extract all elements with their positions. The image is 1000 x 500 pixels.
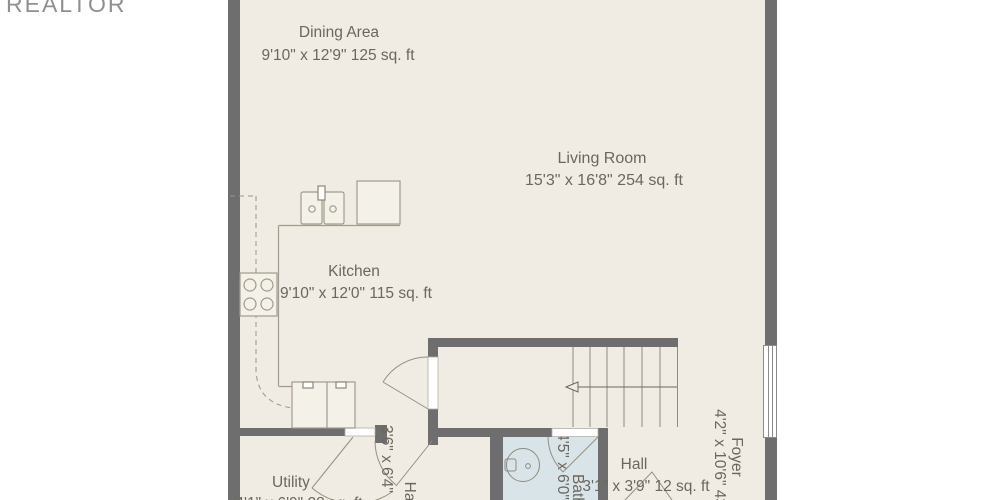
kitchen-sink-icon [301,186,344,224]
kitchen-appliance-icon [357,181,400,224]
utility-name: Utility [231,474,351,492]
living-room-dims: 15'3" x 16'8" 254 sq. ft [494,172,714,190]
kitchen-counter [279,226,401,387]
staircase-icon [566,347,678,427]
living-room-name: Living Room [522,150,682,168]
floorplan-fixtures [0,0,1000,500]
utility-dims: 4'1" x 6'9" 28 sq. ft [224,495,374,500]
hall-name: Hall [584,456,684,474]
foyer-name: Foyer [727,417,745,497]
hall-corridor-name: Hall [400,455,418,500]
dining-area-dims: 9'10" x 12'9" 125 sq. ft [228,47,448,65]
hall-corridor-dims: 3'6" x 6'4" [377,404,395,500]
dining-area-name: Dining Area [259,24,419,42]
kitchen-name: Kitchen [284,263,424,281]
bath-name: Bath [568,455,586,500]
washer-dryer-icon [292,382,355,428]
floorplan-page: REALTOR 4'5" x 6'0" [0,0,1000,500]
foyer-dims: 4'2" x 10'6" 43 sq. ft [710,392,728,500]
stair-direction-arrow-icon [566,382,578,392]
kitchen-dims: 9'10" x 12'0" 115 sq. ft [246,285,466,303]
bathroom-sink-icon [505,449,540,482]
